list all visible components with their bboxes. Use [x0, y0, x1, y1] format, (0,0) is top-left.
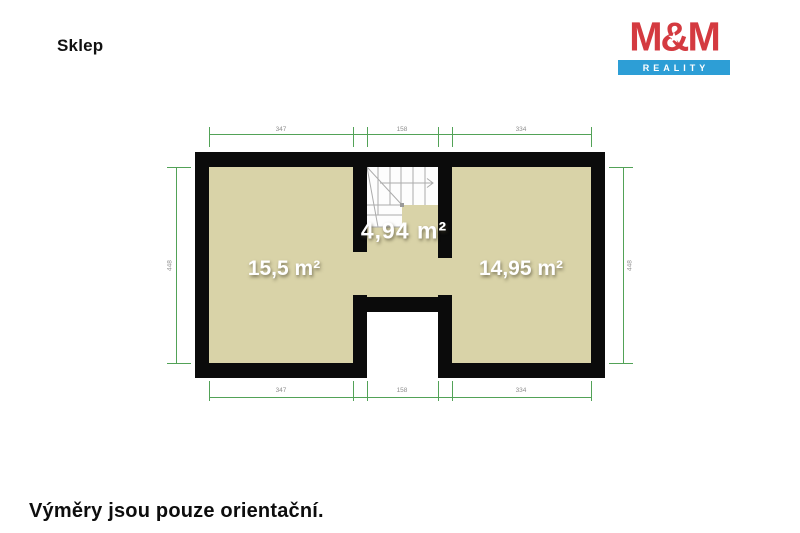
logo-reality-text: REALITY — [639, 63, 710, 73]
dim-tick — [167, 167, 191, 168]
stair-hall-area-label: 4,94 m² — [361, 218, 447, 245]
dim-tick — [209, 381, 210, 401]
logo-mm-box: M&M ★ — [618, 14, 730, 60]
dim-tick — [438, 127, 439, 147]
star-icon: ★ — [667, 30, 680, 45]
dim-label-top-left: 347 — [251, 126, 311, 133]
dimension-line-top — [209, 134, 591, 135]
page-title: Sklep — [57, 36, 103, 56]
dim-tick — [609, 167, 633, 168]
dim-label-bottom-middle: 158 — [372, 387, 432, 394]
doorway-left-icon — [353, 252, 367, 295]
dim-tick — [609, 363, 633, 364]
dim-tick — [367, 127, 368, 147]
dim-tick — [452, 381, 453, 401]
dim-label-bottom-right: 334 — [491, 387, 551, 394]
bottom-opening — [367, 312, 438, 378]
dim-label-bottom-left: 347 — [251, 387, 311, 394]
dim-tick — [353, 381, 354, 401]
dimension-line-bottom — [209, 397, 591, 398]
mm-reality-logo: M&M ★ REALITY — [618, 14, 730, 75]
dim-tick — [367, 381, 368, 401]
room-left-area-label: 15,5 m² — [248, 257, 320, 281]
dim-tick — [209, 127, 210, 147]
room-right-area-label: 14,95 m² — [479, 257, 563, 281]
dim-label-left: 448 — [167, 251, 174, 281]
dim-tick — [167, 363, 191, 364]
dim-tick — [438, 381, 439, 401]
dim-tick — [591, 127, 592, 147]
dim-label-top-right: 334 — [491, 126, 551, 133]
doorway-right-icon — [438, 258, 452, 295]
logo-reality-bar: REALITY — [618, 60, 730, 75]
dim-label-right: 448 — [627, 251, 634, 281]
footer-note: Výměry jsou pouze orientační. — [29, 500, 324, 523]
dim-label-top-middle: 158 — [372, 126, 432, 133]
dim-tick — [452, 127, 453, 147]
dim-tick — [353, 127, 354, 147]
dimension-line-left — [176, 167, 177, 363]
dim-tick — [591, 381, 592, 401]
dimension-line-right — [623, 167, 624, 363]
